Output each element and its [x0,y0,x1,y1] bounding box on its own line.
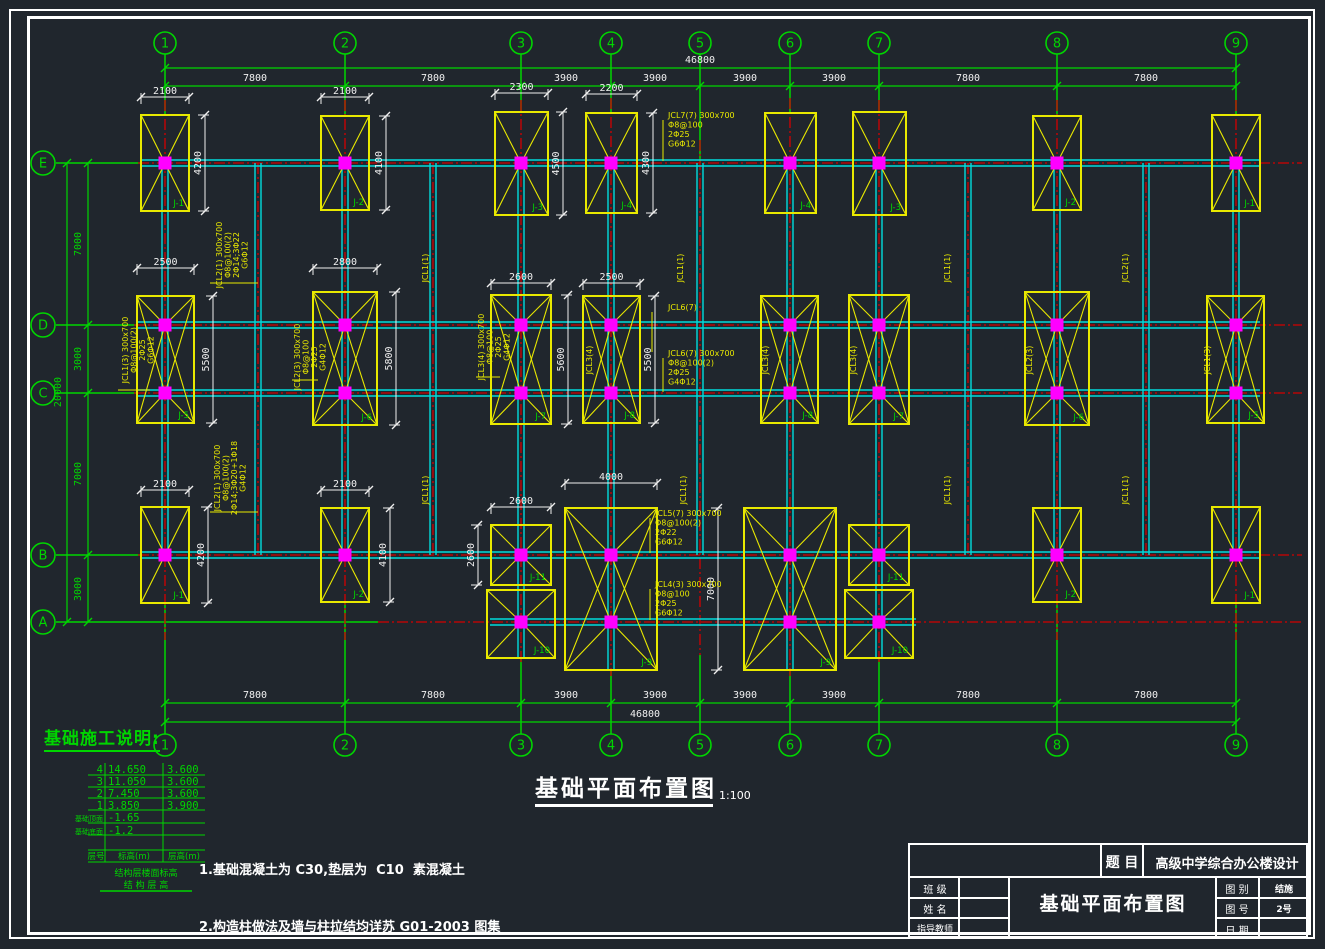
drawing-title: 基础平面布置图 [535,769,717,803]
column-square [1230,157,1243,170]
table-header: 层号 [87,852,104,862]
footing-diagonal [1057,292,1089,393]
beam-annotation: Φ8@100 [668,121,703,130]
footing-diagonal [765,113,790,163]
dim-text: 4200 [193,151,204,175]
beam-annotation: JCL1(1) [421,476,430,506]
footing-diagonal [1025,292,1057,393]
footing-diagonal [521,112,548,163]
dim-text: 2300 [509,82,533,93]
footing-label: J-1 [172,199,184,209]
axis-bubble-label: 1 [161,739,169,754]
beam-annotation: JCL1(3) [1203,346,1212,376]
dim-text: 3900 [733,73,757,84]
beam-annotation: G6Φ12 [241,241,250,269]
table-cell: 4 [97,764,103,776]
construction-notes: 1.基础混凝土为 C30,垫层为 C10 素混凝土 2.构造柱做法及墙与柱拉结均… [199,823,552,949]
footing-label: J-5 [1247,411,1259,421]
table-cell: 11.050 [108,776,146,788]
dim-text: 4100 [374,151,385,175]
drawing-sheet: 700030007000300020000J-1J-2J-3J-4J-4J-3J… [0,0,1325,949]
footing-label: J-7 [534,412,546,422]
table-cell: 2 [97,788,103,800]
footing-label: J-3 [531,203,543,213]
beam-annotation: G4Φ12 [503,333,512,361]
construction-notes-heading: 基础施工说明: [44,724,160,752]
beam-annotation: JCL5(7) 300x700 [654,509,722,518]
beam-annotation: JCL6(7) 300x700 [667,349,735,358]
fig-type-value: 结施 [1260,882,1308,895]
footing-diagonal [313,325,345,425]
table-cell: 3.600 [167,788,199,800]
beam-annotation: 2Φ25 [655,599,677,608]
footing-label: J-6 [1072,413,1084,423]
fig-no-label: 图 号 [1216,901,1258,916]
beam-annotation: G6Φ12 [147,336,156,364]
titleblock-drawing-title: 基础平面布置图 [1012,889,1214,916]
dim-text: 5800 [384,346,395,370]
titleblock-line [910,897,1010,899]
beam-annotation: JCL3(4) [585,346,594,376]
table-cell: 基础底面 [75,827,103,836]
dim-text: 2200 [599,83,623,94]
dim-text: 2600 [509,272,533,283]
column-square [873,319,886,332]
column-square [1051,387,1064,400]
dim-text: 2100 [333,86,357,97]
beam-annotation: G4Φ12 [319,343,328,371]
footing-diagonal [1057,325,1089,425]
footing-diagonal [611,113,637,163]
footing-label: J-2 [1064,590,1076,600]
axis-bubble-label: 7 [875,739,883,754]
footing-diagonal [853,163,879,215]
footing-diagonal [744,622,790,670]
class-label: 班 级 [912,881,958,896]
column-square [784,549,797,562]
column-square [784,387,797,400]
footing-diagonal [586,113,611,163]
table-cell: 14.650 [108,764,146,776]
column-square [605,616,618,629]
footing-label: J-11 [529,573,546,583]
column-square [159,157,172,170]
dim-text: 3900 [643,690,667,701]
column-square [784,319,797,332]
footing-diagonal [790,113,816,163]
dim-text: 4100 [378,543,389,567]
footing-diagonal [1033,116,1057,163]
footing-label: J-10 [533,646,550,656]
dim-text: 2100 [153,479,177,490]
footing-label: J-8 [801,411,813,421]
beam-annotation: 2Φ25 [668,368,690,377]
axis-bubble-label: 9 [1232,37,1240,52]
table-caption: 结构层楼面标高 [114,867,177,879]
footing-diagonal [141,555,165,603]
column-square [159,549,172,562]
footing-diagonal [1212,555,1236,603]
footing-label: J-5 [177,411,189,421]
footing-diagonal [141,115,165,163]
footing-label: J-8 [623,411,635,421]
column-square [1051,549,1064,562]
footing-diagonal [790,508,836,555]
axis-bubble-label: 4 [607,37,615,52]
note-line: 1.基础混凝土为 C30,垫层为 C10 素混凝土 [199,861,552,880]
dim-text: 4200 [196,543,207,567]
column-square [1230,549,1243,562]
column-square [873,157,886,170]
axis-bubble-label: 2 [341,739,349,754]
dim-text: 7800 [243,73,267,84]
dim-text: 46800 [685,55,715,66]
footing-diagonal [345,116,369,163]
footing-label: J-7 [892,412,904,422]
beam-annotation: JCL2(3) [1025,346,1034,376]
footing-diagonal [565,508,611,555]
footing-diagonal [565,555,611,670]
dim-text: 2600 [466,543,477,567]
column-square [515,549,528,562]
column-square [605,319,618,332]
footing-diagonal [1212,115,1236,163]
column-square [605,387,618,400]
beam-annotation: Φ8@100(2) [668,359,714,368]
beam-annotation: JCL2(1) [1121,254,1130,284]
name-label: 姓 名 [912,901,958,916]
axis-bubble-label: A [39,616,48,631]
dim-text: 46800 [630,709,660,720]
dim-text: 2600 [509,496,533,507]
footing-diagonal [1057,116,1081,163]
footing-label: J-10 [891,646,908,656]
axis-bubble-label: 8 [1053,37,1061,52]
dim-text: 3900 [554,73,578,84]
table-cell: 3.900 [167,800,199,812]
axis-bubble-label: C [38,387,47,402]
beam-annotation: JCL3(4) [849,346,858,376]
column-square [873,616,886,629]
table-cell: 3.850 [108,800,140,812]
footing-label: J-2 [1064,198,1076,208]
titleblock-line [910,876,1306,878]
dim-text: 3900 [643,73,667,84]
dim-text: 7000 [73,232,84,256]
footing-diagonal [790,555,836,670]
column-square [339,157,352,170]
dim-text: 5500 [201,347,212,371]
footing-diagonal [744,508,790,555]
footing-diagonal [495,112,521,163]
table-cell: 3.600 [167,776,199,788]
beam-annotation: JCL1(1) [943,476,952,506]
footing-diagonal [744,508,790,622]
footing-label: J-2 [352,590,364,600]
titleblock-line [1215,897,1306,899]
column-square [515,616,528,629]
footing-diagonal [790,508,836,622]
axis-bubble-label: 5 [696,739,704,754]
axis-bubble-label: 5 [696,37,704,52]
dim-text: 4300 [641,151,652,175]
dim-text: 3000 [73,347,84,371]
table-cell: 3 [97,776,103,788]
beam-annotation: G4Φ12 [668,378,696,387]
dim-text: 2800 [333,257,357,268]
beam-annotation: 2Φ25 [668,130,690,139]
axis-bubble-label: 7 [875,37,883,52]
dim-text: 4500 [551,151,562,175]
table-header: 标高(m) [118,851,150,862]
beam-annotation: JCL1(1) [421,254,430,284]
axis-bubble-label: 9 [1232,739,1240,754]
titleblock-line [958,878,960,936]
dim-text: 2500 [153,257,177,268]
column-square [515,157,528,170]
table-cell: 7.450 [108,788,140,800]
dim-text: 3900 [733,690,757,701]
column-square [1051,157,1064,170]
footing-label: J-1 [172,591,184,601]
table-caption: 结 构 层 高 [124,879,169,891]
dim-text: 7800 [243,690,267,701]
dim-text: 2100 [333,479,357,490]
beam-annotation: JCL1(1) [676,254,685,284]
column-square [1230,319,1243,332]
beam-annotation: 2Φ22 [655,528,677,537]
beam-annotation: G4Φ12 [239,464,248,492]
footing-label: J-4 [799,201,811,211]
footing-diagonal [853,112,879,163]
column-square [1051,319,1064,332]
dim-text: 7800 [1134,690,1158,701]
footing-label: J-3 [889,203,901,213]
footing-diagonal [165,115,189,163]
subject-label: 题 目 [1100,852,1144,872]
footing-label: J-1 [1243,199,1255,209]
footing-label: J-4 [620,201,632,211]
beam-layer [137,160,1260,670]
footing-diagonal [1033,555,1057,602]
table-header: 层高(m) [168,851,200,862]
footing-diagonal [321,555,345,602]
column-square [515,319,528,332]
footing-diagonal [313,292,345,393]
titleblock: 题 目 高级中学综合办公楼设计 班 级 姓 名 指导教师 基础平面布置图 图 别… [908,843,1308,938]
axis-bubble-label: 1 [161,37,169,52]
beam-annotation: Φ8@100 [655,590,690,599]
column-square [873,549,886,562]
fig-no-value: 2号 [1260,902,1308,915]
footing-diagonal [345,292,377,393]
dim-text: 2500 [599,272,623,283]
axis-bubble-label: E [39,157,47,172]
column-square [784,616,797,629]
footing-label: J-1 [1243,591,1255,601]
beam-annotation: JCL1(1) [679,476,688,506]
beam-annotation: G6Φ12 [655,538,683,547]
column-square [605,549,618,562]
column-square [159,387,172,400]
dim-text: 4000 [599,472,623,483]
fig-type-label: 图 别 [1216,881,1258,896]
level-table: 414.6503.600311.0503.60027.4503.60013.85… [75,763,205,891]
footing-diagonal [879,112,906,163]
title-underline [535,804,713,807]
beam-annotation: Φ8@100(2) [655,519,701,528]
footing-diagonal [565,622,611,670]
beam-annotation: JCL4(3) 300x700 [654,580,722,589]
footing-diagonal [565,508,611,622]
axis-bubble-label: 4 [607,739,615,754]
dim-text: 5600 [556,347,567,371]
beam-annotation: G6Φ12 [668,140,696,149]
dim-text: 3900 [822,690,846,701]
footing-label: J-6 [360,413,372,423]
titleblock-line [1008,878,1010,936]
dim-text: 3900 [554,690,578,701]
table-cell: 3.600 [167,764,199,776]
table-cell: 基础顶面 [75,814,103,823]
footing-label: J-11 [887,573,904,583]
column-square [339,319,352,332]
table-cell: -1.65 [108,812,140,824]
beam-annotation: JCL1(1) [1121,476,1130,506]
drawing-title-block: 基础平面布置图 1:100 [535,769,717,807]
footing-diagonal [586,163,611,213]
beam-annotation: JCL6(7) [667,303,697,312]
beam-annotation: JCL1(1) [943,254,952,284]
column-square [339,387,352,400]
axis-bubble-label: 3 [517,37,525,52]
column-square [605,157,618,170]
note-line: 2.构造柱做法及墙与柱拉结均详苏 G01-2003 图集 [199,918,552,937]
dim-text: 7800 [956,690,980,701]
dim-text: 7800 [421,73,445,84]
dim-text: 2100 [153,86,177,97]
column-square [339,549,352,562]
footing-diagonal [321,116,345,163]
date-label: 日 期 [1216,922,1258,937]
dim-text: 3000 [73,577,84,601]
footing-diagonal [765,163,790,213]
dim-text: 3900 [822,73,846,84]
footing-label: J-9 [819,658,831,668]
titleblock-line [910,917,1010,919]
beam-annotation: JCL7(7) 300x700 [667,111,735,120]
column-square [873,387,886,400]
table-cell: -1.2 [108,825,133,837]
footing-diagonal [345,325,377,425]
advisor-label: 指导教师 [912,922,958,935]
table-cell: 1 [97,800,103,812]
column-square [515,387,528,400]
footing-label: J-9 [640,658,652,668]
footing-label: J-2 [352,198,364,208]
axis-bubble-label: 3 [517,739,525,754]
axis-bubble-label: B [39,549,48,564]
beam-annotation: JCL3(4) [761,346,770,376]
axis-bubble-label: 6 [786,739,794,754]
axis-bubble-label: 8 [1053,739,1061,754]
dim-text: 7800 [421,690,445,701]
axis-bubble-label: D [38,319,48,334]
titleblock-line [1215,917,1306,919]
footing-diagonal [1236,115,1260,163]
beam-annotation: G6Φ12 [655,609,683,618]
drawing-scale: 1:100 [719,789,751,802]
column-square [159,319,172,332]
footing-diagonal [495,163,521,215]
dimension-layer: 7800780039003900390039007800780046800780… [133,55,1158,720]
column-square [784,157,797,170]
subject-value: 高级中学综合办公楼设计 [1144,853,1310,872]
footing-diagonal [744,555,790,670]
dim-text: 7000 [73,462,84,486]
dim-text: 7800 [1134,73,1158,84]
column-square [1230,387,1243,400]
axis-bubble-label: 6 [786,37,794,52]
axis-bubble-label: 2 [341,37,349,52]
dim-text: 7800 [956,73,980,84]
